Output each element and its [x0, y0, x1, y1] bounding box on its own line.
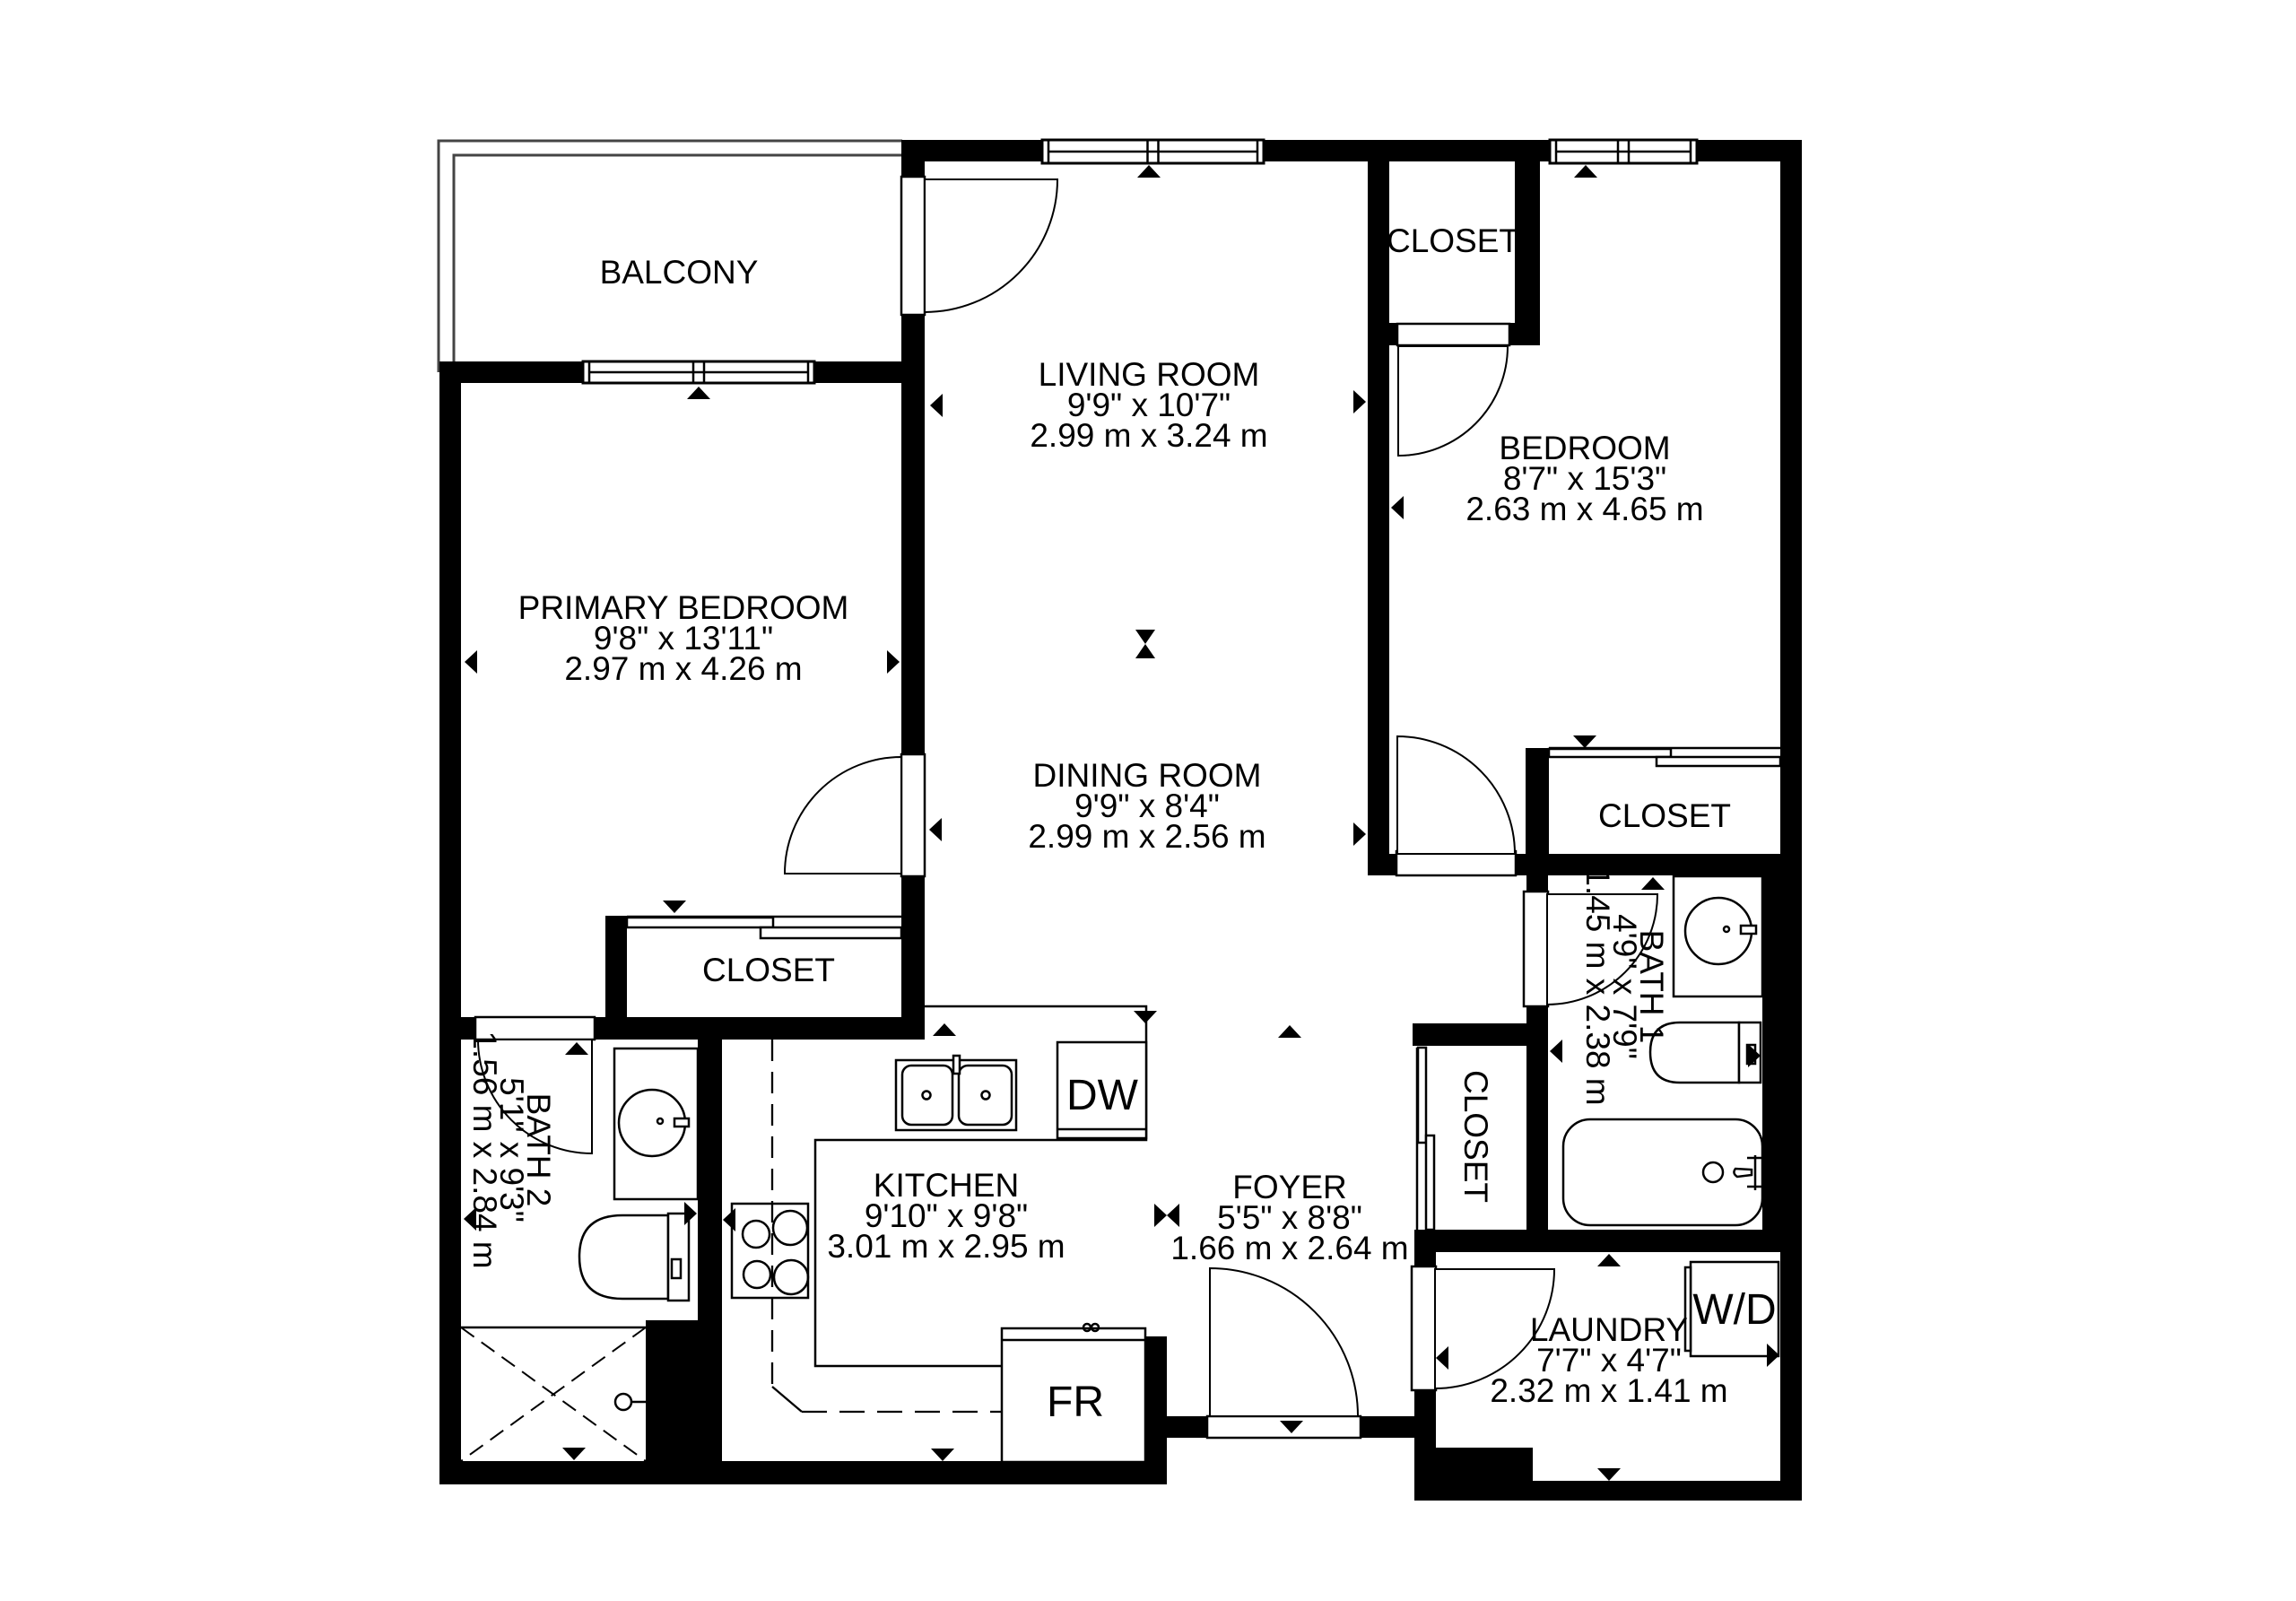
svg-text:CLOSET: CLOSET [1598, 797, 1731, 834]
svg-text:CLOSET: CLOSET [1387, 222, 1519, 259]
svg-text:FR: FR [1047, 1379, 1104, 1426]
svg-text:CLOSET: CLOSET [702, 952, 835, 988]
svg-text:BALCONY: BALCONY [600, 254, 759, 291]
svg-text:CLOSET: CLOSET [1457, 1070, 1494, 1203]
svg-text:DW: DW [1066, 1072, 1139, 1119]
svg-text:W/D: W/D [1692, 1286, 1776, 1334]
